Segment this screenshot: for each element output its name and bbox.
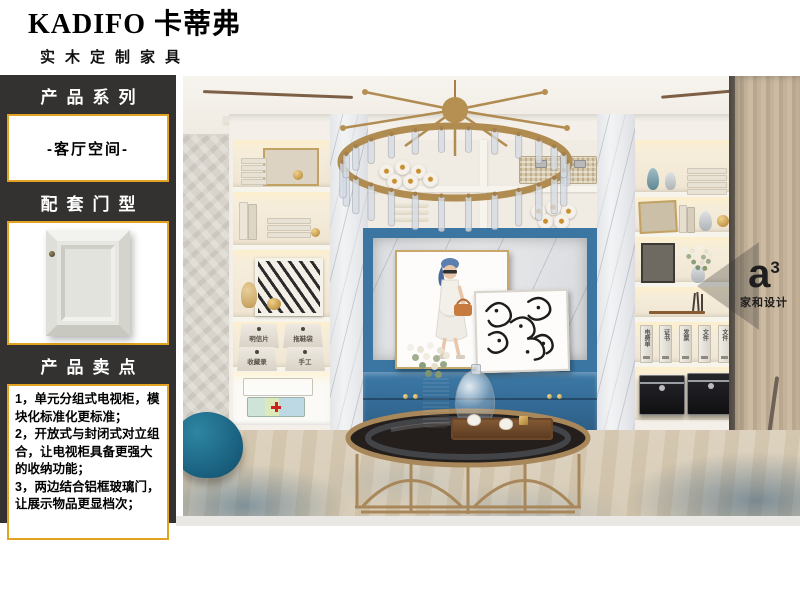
dark-vase	[423, 376, 449, 428]
framed-art	[641, 243, 675, 283]
wire-basket	[243, 378, 313, 396]
abstract-faces-artwork	[474, 289, 570, 373]
book	[687, 207, 695, 233]
drawer-knob	[413, 394, 418, 399]
file-label: 文件	[700, 329, 709, 341]
white-vase	[699, 211, 712, 231]
shelf-cell	[635, 367, 737, 420]
watermark-logo: a3	[731, 254, 797, 294]
selling-point-3: 3，两边结合铝框玻璃门，让展示物品更显档次；	[15, 479, 161, 514]
teacup	[467, 414, 481, 426]
file-box: 发票	[679, 325, 692, 363]
file-box: 文件	[698, 325, 711, 363]
selling-points-box: 1，单元分组式电视柜，模块化标准化更标准； 2，开放式与封闭式对立组合，让电视柜…	[7, 384, 169, 540]
door-panel-image	[46, 230, 130, 336]
drawer-knob	[557, 394, 562, 399]
book	[679, 205, 687, 233]
watermark-sup: 3	[770, 258, 779, 277]
photo-bottom-strip	[176, 516, 800, 526]
chevron-artwork	[255, 258, 323, 316]
storage-bin: 收藏录	[237, 347, 277, 371]
glass-vase	[647, 168, 659, 190]
file-label: 文件	[720, 329, 729, 341]
line-art-drawing	[476, 291, 564, 367]
storage-bin: 拖鞋袋	[283, 324, 323, 348]
bin-label: 收藏录	[237, 356, 277, 366]
pampas-vase	[241, 282, 257, 308]
brand-header: KADIFO 卡蒂弗 实木定制家具	[28, 2, 241, 67]
incense-stick	[692, 293, 696, 311]
section-title-door: 配套门型	[0, 190, 176, 215]
door-inner-panel	[61, 245, 115, 321]
drawer-knob	[403, 394, 408, 399]
watermark-caption: 家和设计	[731, 294, 797, 310]
drawer-knob	[547, 394, 552, 399]
gold-ornament-icon	[519, 416, 528, 425]
selling-point-2: 2，开放式与封闭式对立组合，让电视柜具备更强大的收纳功能；	[15, 426, 161, 479]
shelf-cell: 明信片 拖鞋袋 收藏录 手工	[233, 322, 330, 372]
file-label: 发票	[681, 329, 690, 341]
flower-bouquet	[683, 247, 719, 275]
book	[239, 202, 248, 240]
door-knob	[49, 251, 55, 257]
series-value: -客厅空间-	[47, 138, 129, 159]
gold-ornament-icon	[717, 215, 729, 227]
brand-tagline: 实木定制家具	[40, 46, 241, 67]
first-aid-box	[247, 397, 305, 417]
bin-label: 拖鞋袋	[283, 333, 323, 343]
series-value-box: -客厅空间-	[7, 114, 169, 182]
black-trunk	[687, 373, 735, 415]
storage-bin: 明信片	[239, 324, 279, 348]
selling-point-1: 1，单元分组式电视柜，模块化标准化更标准；	[15, 391, 161, 426]
framed-art	[638, 200, 678, 234]
storage-bin: 手工	[285, 347, 325, 371]
brand-logo-text: KADIFO 卡蒂弗	[28, 2, 241, 42]
bin-label: 手工	[285, 356, 325, 366]
chandelier-icon	[295, 80, 615, 265]
file-box: 证书	[659, 325, 672, 363]
book-stack	[687, 168, 727, 196]
room-photo: 明信片 拖鞋袋 收藏录 手工	[183, 76, 800, 516]
book-stack	[241, 158, 267, 186]
product-info-sidebar: 产品系列 -客厅空间- 配套门型 产品卖点 1，单元分组式电视柜，模块化标准化更…	[0, 75, 176, 523]
shelf-cell	[635, 197, 737, 237]
shelf-cell	[635, 140, 737, 197]
file-label: 证书	[661, 329, 670, 341]
section-title-series: 产品系列	[0, 83, 176, 108]
bin-label: 明信片	[239, 333, 279, 343]
gold-ornament-icon	[267, 298, 281, 310]
catalog-page: KADIFO 卡蒂弗 实木定制家具 产品系列 -客厅空间- 配套门型 产品卖点 …	[0, 0, 800, 600]
book	[248, 204, 257, 240]
file-label: 电费单	[642, 329, 651, 347]
file-box: 电费单	[640, 325, 653, 363]
door-type-box	[7, 221, 169, 345]
teacup	[499, 418, 513, 430]
designer-watermark: a3 家和设计	[731, 254, 797, 310]
shelf-cell	[233, 372, 330, 425]
black-trunk	[639, 375, 685, 415]
glass-vase	[665, 172, 676, 190]
section-title-selling: 产品卖点	[0, 353, 176, 378]
